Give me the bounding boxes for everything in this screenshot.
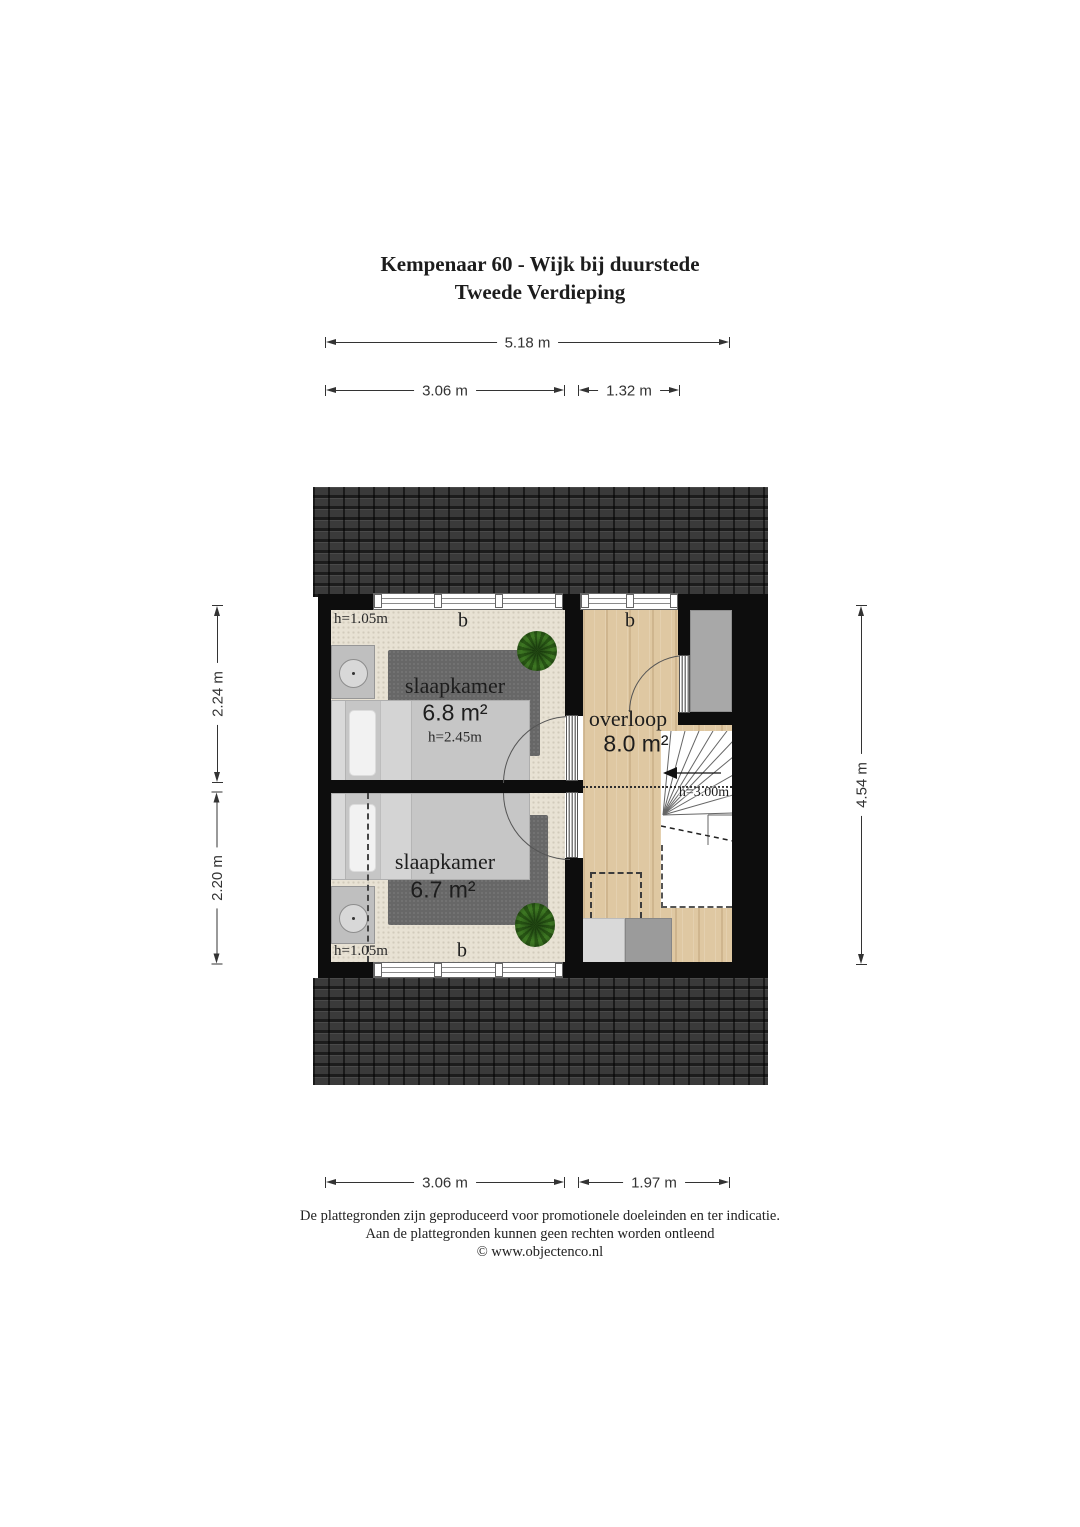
wall-middle-segment xyxy=(565,594,583,716)
dimension-top-right: 1.32 m xyxy=(578,382,680,400)
dimension-label: 4.54 m xyxy=(854,754,871,816)
dimension-top-width: 5.18 m xyxy=(325,334,730,352)
knee-height-label-bottom: h=1.05m xyxy=(334,943,388,960)
room-name-bedroom-bottom: slaapkamer xyxy=(395,849,495,875)
window-type-label: b xyxy=(625,610,635,633)
storage-box-light xyxy=(577,918,625,963)
disclaimer-line2: Aan de plattegronden kunnen geen rechten… xyxy=(0,1225,1080,1243)
dimension-label: 2.20 m xyxy=(209,847,226,909)
room-area-bedroom-top: 6.8 m² xyxy=(422,700,487,727)
dimension-label: 5.18 m xyxy=(497,335,559,352)
room-area-landing: 8.0 m² xyxy=(603,731,668,758)
plant xyxy=(517,631,557,671)
disclaimer-line1: De plattegronden zijn geproduceerd voor … xyxy=(0,1207,1080,1225)
door-bedroom-top xyxy=(566,715,578,781)
dimension-label: 1.97 m xyxy=(623,1175,685,1192)
wall-right xyxy=(732,594,768,978)
knee-height-label-top: h=1.05m xyxy=(334,611,388,628)
floorplan-page: Kempenaar 60 - Wijk bij duurstede Tweede… xyxy=(0,0,1080,1527)
stairs-height-label: h=3.00m xyxy=(679,785,729,801)
closet xyxy=(690,610,732,712)
disclaimer-line3: © www.objectenco.nl xyxy=(0,1243,1080,1261)
window-landing xyxy=(580,593,678,610)
bed-pillow xyxy=(349,804,376,872)
dimension-label: 3.06 m xyxy=(414,383,476,400)
dimension-right: 4.54 m xyxy=(853,605,871,965)
bed-pillow xyxy=(349,710,376,776)
roof-bottom xyxy=(313,978,768,1085)
room-name-bedroom-top: slaapkamer xyxy=(405,673,505,699)
wall-top-segment xyxy=(318,594,373,610)
room-area-bedroom-bottom: 6.7 m² xyxy=(410,877,475,904)
clock-icon xyxy=(339,904,368,933)
door-bedroom-bottom xyxy=(566,792,578,858)
wall-middle-segment xyxy=(565,858,583,962)
dimension-top-left: 3.06 m xyxy=(325,382,565,400)
nightstand-bedroom-top xyxy=(331,645,375,699)
room-name-landing: overloop xyxy=(589,706,667,732)
dimension-left-lower: 2.20 m xyxy=(209,792,227,965)
dimension-label: 2.24 m xyxy=(210,663,227,725)
title-line1: Kempenaar 60 - Wijk bij duurstede xyxy=(0,250,1080,278)
dimension-left-upper: 2.24 m xyxy=(209,605,227,783)
dimension-bottom-right: 1.97 m xyxy=(578,1174,730,1192)
dimension-label: 3.06 m xyxy=(414,1175,476,1192)
wall-closet-left xyxy=(678,610,690,655)
wall-top-segment xyxy=(678,594,768,610)
bed-headboard xyxy=(332,701,346,782)
window-bedroom-bottom xyxy=(373,962,563,978)
clock-icon xyxy=(339,659,368,688)
window-bedroom-top xyxy=(373,593,563,610)
storage-box-dark xyxy=(625,918,672,963)
wall-closet-bottom xyxy=(678,712,732,725)
disclaimer: De plattegronden zijn geproduceerd voor … xyxy=(0,1207,1080,1261)
bed-duvet-fold xyxy=(380,701,412,782)
ceiling-height-label: h=2.45m xyxy=(428,730,482,747)
bed-headboard xyxy=(332,794,346,879)
stair-void xyxy=(661,845,732,908)
wall-bottom-segment xyxy=(318,962,373,978)
window-type-label: b xyxy=(458,610,468,633)
wall-bottom-segment xyxy=(563,962,768,978)
plant xyxy=(515,903,555,947)
window-type-label: b xyxy=(457,940,467,963)
dimension-label: 1.32 m xyxy=(598,383,660,400)
knee-wall-dashed-line xyxy=(367,793,369,962)
dimension-bottom-left: 3.06 m xyxy=(325,1174,565,1192)
roof-top xyxy=(313,487,768,597)
title-line2: Tweede Verdieping xyxy=(0,278,1080,306)
door-closet xyxy=(679,655,690,713)
page-title: Kempenaar 60 - Wijk bij duurstede Tweede… xyxy=(0,250,1080,306)
